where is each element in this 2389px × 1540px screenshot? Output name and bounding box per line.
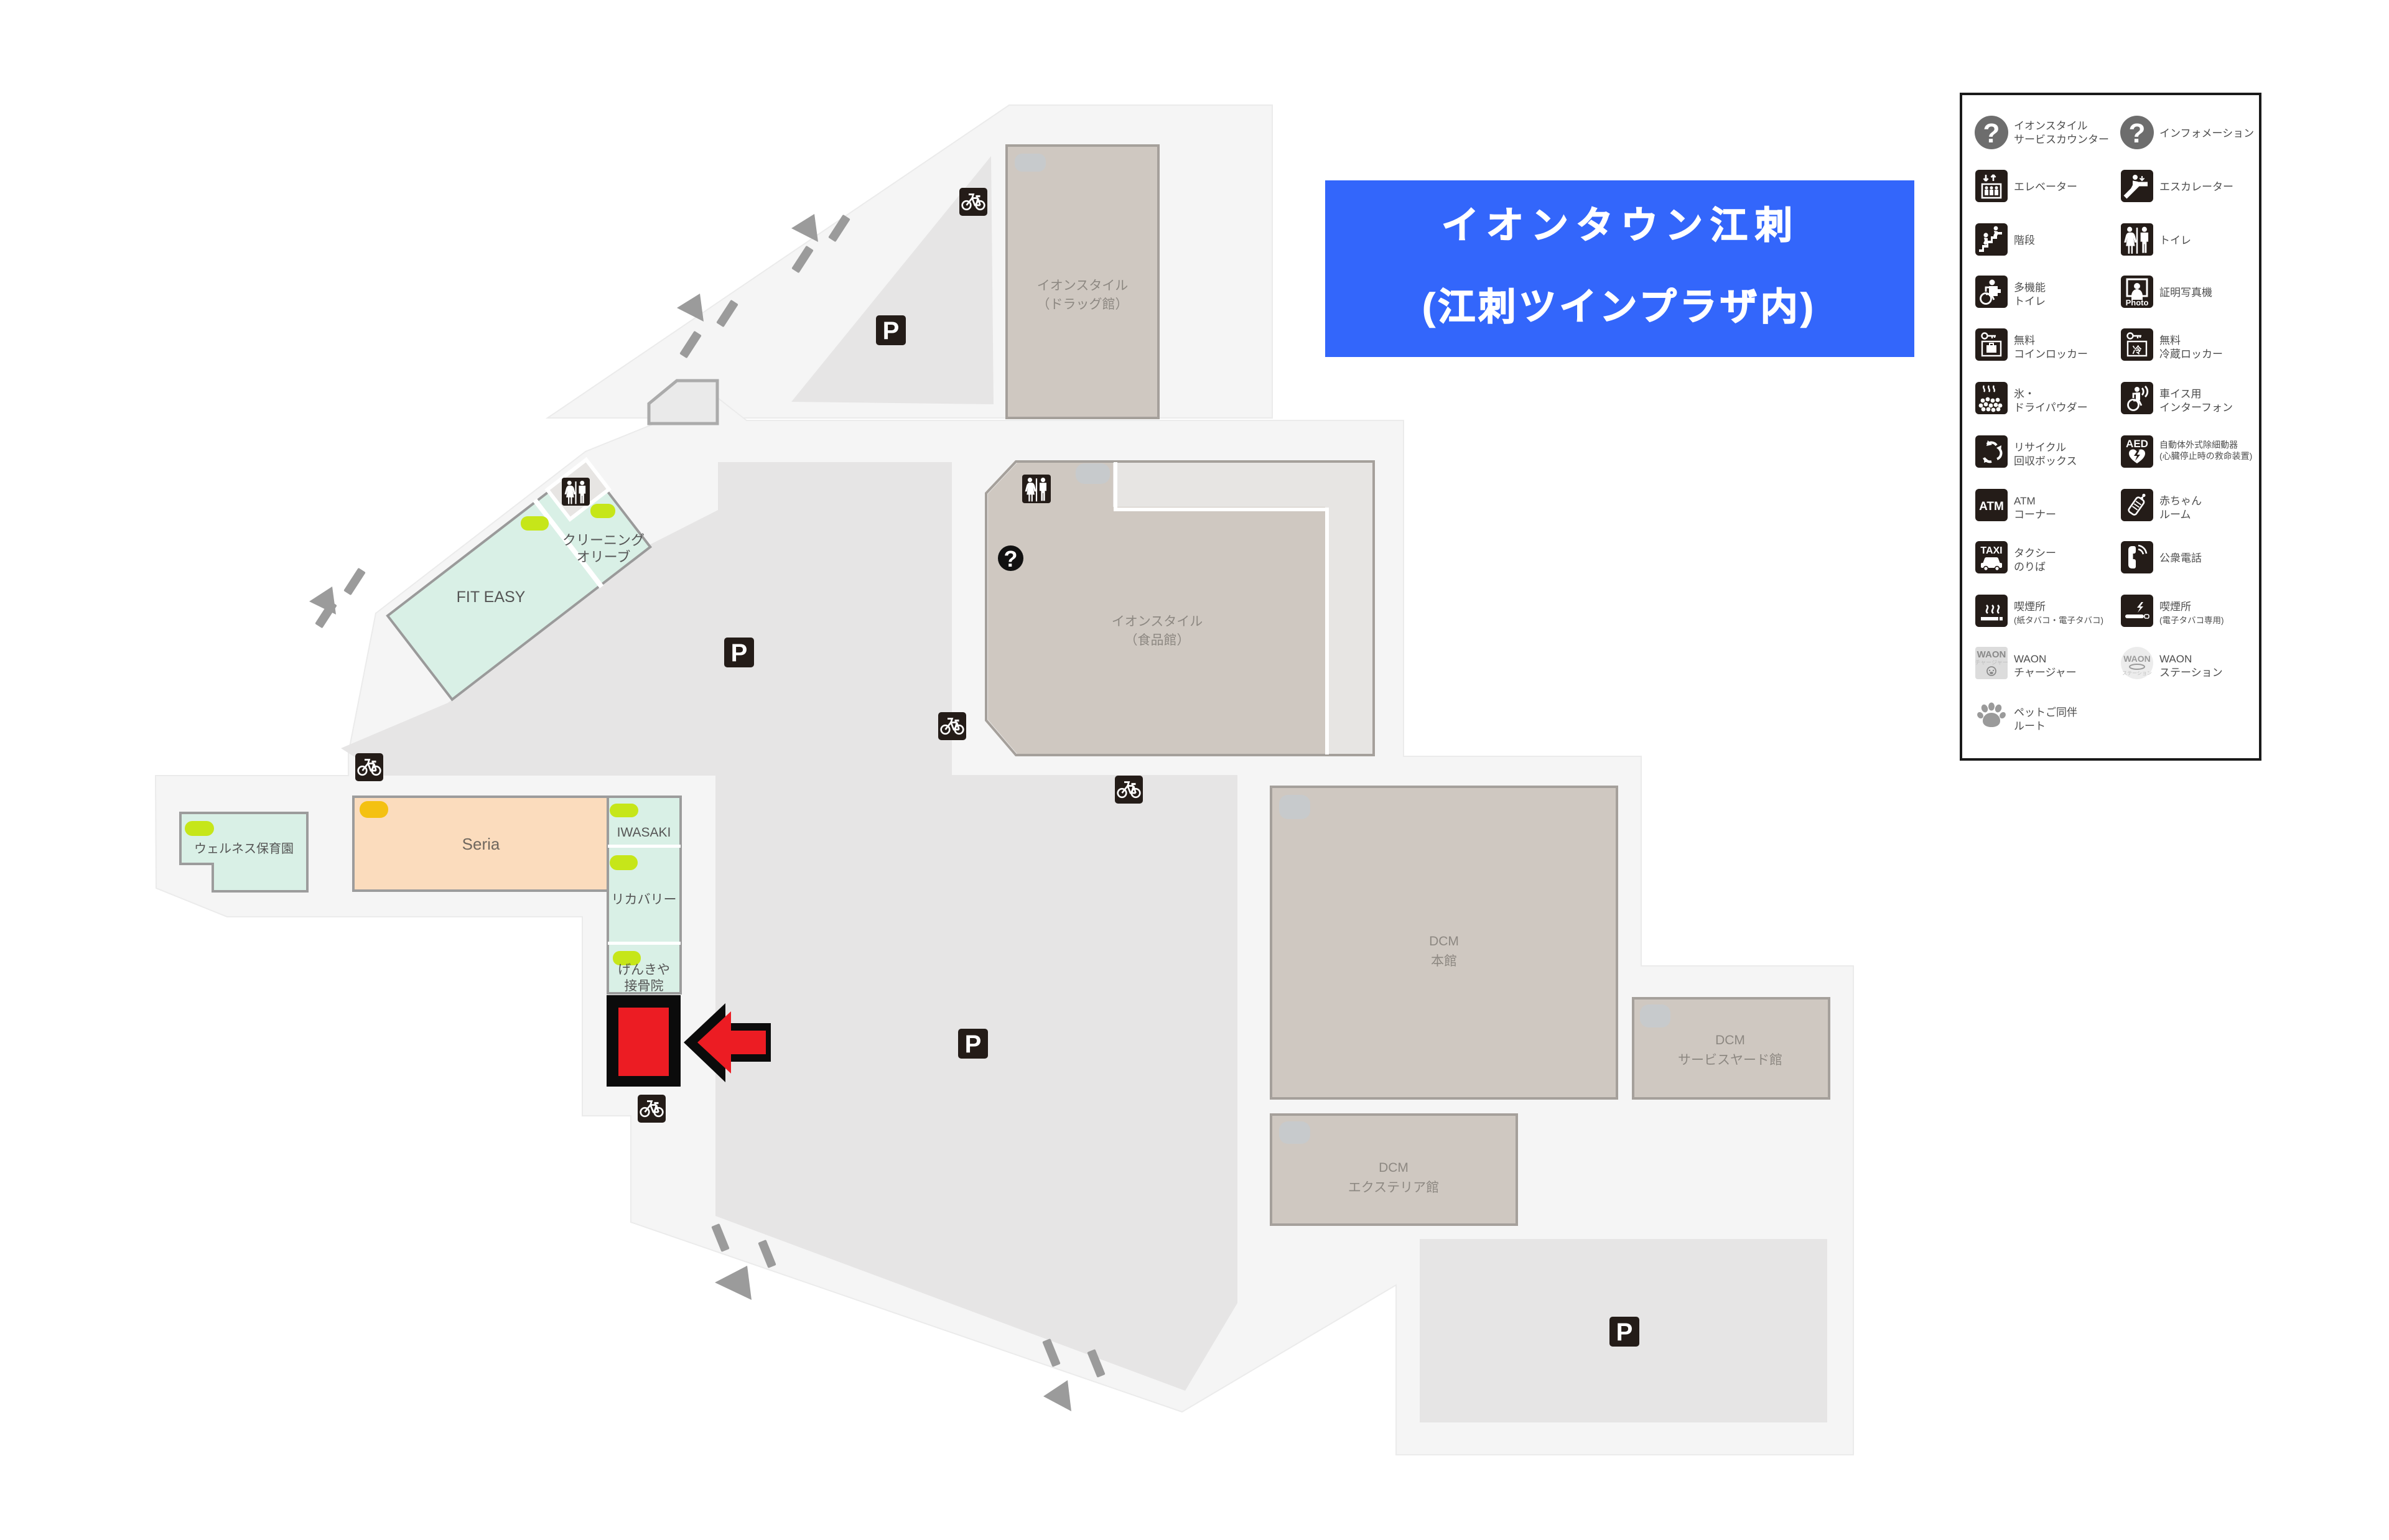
svg-text:Seria: Seria — [462, 835, 500, 853]
svg-text:?: ? — [1004, 546, 1018, 572]
svg-text:公衆電話: 公衆電話 — [2159, 552, 2202, 564]
svg-text:ステーション: ステーション — [2122, 670, 2152, 676]
svg-text:エレベーター: エレベーター — [2014, 181, 2077, 193]
svg-text:インフォメーション: インフォメーション — [2159, 128, 2254, 139]
svg-text:IWASAKI: IWASAKI — [617, 825, 671, 840]
svg-text:DCM: DCM — [1715, 1033, 1745, 1047]
svg-text:エクステリア館: エクステリア館 — [1348, 1181, 1439, 1195]
svg-text:TAXI: TAXI — [1980, 545, 2002, 556]
svg-text:イオンタウン江刺: イオンタウン江刺 — [1441, 205, 1800, 246]
svg-text:インターフォン: インターフォン — [2159, 402, 2233, 414]
svg-text:AED: AED — [2126, 438, 2148, 450]
svg-text:サービスヤード館: サービスヤード館 — [1678, 1053, 1782, 1067]
svg-text:接骨院: 接骨院 — [625, 979, 664, 993]
svg-text:ルーム: ルーム — [2159, 509, 2191, 521]
svg-text:イオンスタイル: イオンスタイル — [1112, 615, 1203, 629]
svg-text:冷: 冷 — [2132, 345, 2141, 356]
svg-text:氷・: 氷・ — [2014, 388, 2035, 400]
svg-text:オリーブ: オリーブ — [577, 549, 631, 565]
svg-text:FIT EASY: FIT EASY — [457, 588, 526, 606]
svg-text:トイレ: トイレ — [2159, 234, 2191, 246]
svg-text:エスカレーター: エスカレーター — [2159, 181, 2233, 193]
svg-text:チャージャー: チャージャー — [1975, 659, 2008, 666]
svg-text:ドライパウダー: ドライパウダー — [2014, 402, 2088, 414]
svg-text:無料: 無料 — [2159, 335, 2181, 346]
svg-text:トイレ: トイレ — [2014, 295, 2046, 307]
svg-text:(江刺ツインプラザ内): (江刺ツインプラザ内) — [1422, 286, 1816, 328]
svg-text:リサイクル: リサイクル — [2014, 442, 2066, 453]
svg-text:P: P — [965, 1031, 982, 1058]
svg-text:コーナー: コーナー — [2014, 509, 2056, 521]
svg-text:ATM: ATM — [2014, 495, 2036, 507]
svg-text:証明写真機: 証明写真機 — [2159, 287, 2212, 299]
svg-text:ルート: ルート — [2014, 720, 2046, 732]
svg-text:WAON: WAON — [2159, 653, 2192, 665]
svg-text:P: P — [731, 639, 748, 667]
svg-text:コインロッカー: コインロッカー — [2014, 348, 2088, 360]
svg-text:WAON: WAON — [1977, 649, 2006, 660]
svg-text:WAON: WAON — [2123, 654, 2151, 664]
svg-text:チャージャー: チャージャー — [2014, 667, 2077, 679]
svg-text:（ドラッグ館）: （ドラッグ館） — [1037, 297, 1129, 312]
svg-text:ペットご同伴: ペットご同伴 — [2014, 707, 2077, 718]
svg-text:(心臓停止時の救命装置): (心臓停止時の救命装置) — [2159, 451, 2252, 461]
svg-text:階段: 階段 — [2014, 234, 2035, 246]
svg-text:サービスカウンター: サービスカウンター — [2014, 134, 2109, 146]
svg-text:Photo: Photo — [2126, 298, 2149, 307]
svg-text:ATM: ATM — [1979, 500, 2004, 513]
svg-text:喫煙所: 喫煙所 — [2159, 601, 2191, 613]
svg-text:無料: 無料 — [2014, 335, 2035, 346]
svg-text:イオンスタイル: イオンスタイル — [1037, 279, 1129, 293]
svg-text:?: ? — [2129, 118, 2146, 149]
svg-text:自動体外式除細動器: 自動体外式除細動器 — [2159, 440, 2238, 450]
svg-text:P: P — [883, 317, 900, 345]
svg-text:車イス用: 車イス用 — [2159, 388, 2202, 400]
svg-text:（食品館）: （食品館） — [1125, 633, 1190, 647]
svg-text:P: P — [1616, 1319, 1633, 1346]
svg-text:回収ボックス: 回収ボックス — [2014, 455, 2077, 467]
svg-text:のりば: のりば — [2014, 561, 2046, 573]
svg-text:冷蔵ロッカー: 冷蔵ロッカー — [2159, 348, 2223, 360]
svg-text:DCM: DCM — [1379, 1161, 1409, 1175]
svg-text:?: ? — [1983, 118, 2000, 149]
svg-text:多機能: 多機能 — [2014, 282, 2046, 294]
svg-text:喫煙所: 喫煙所 — [2014, 601, 2046, 613]
svg-text:げんきや: げんきや — [618, 963, 670, 977]
svg-text:クリーニング: クリーニング — [562, 532, 645, 548]
svg-text:ステーション: ステーション — [2159, 667, 2223, 679]
svg-text:赤ちゃん: 赤ちゃん — [2159, 495, 2202, 507]
svg-text:DCM: DCM — [1429, 934, 1459, 949]
svg-text:(電子タバコ専用): (電子タバコ専用) — [2159, 616, 2224, 625]
svg-text:本館: 本館 — [1431, 954, 1457, 968]
svg-text:(紙タバコ・電子タバコ): (紙タバコ・電子タバコ) — [2014, 616, 2103, 625]
svg-text:WAON: WAON — [2014, 653, 2046, 665]
svg-text:イオンスタイル: イオンスタイル — [2014, 120, 2088, 132]
svg-text:タクシー: タクシー — [2014, 547, 2056, 559]
svg-text:ウェルネス保育園: ウェルネス保育園 — [194, 842, 294, 856]
svg-text:リカバリー: リカバリー — [612, 893, 677, 907]
